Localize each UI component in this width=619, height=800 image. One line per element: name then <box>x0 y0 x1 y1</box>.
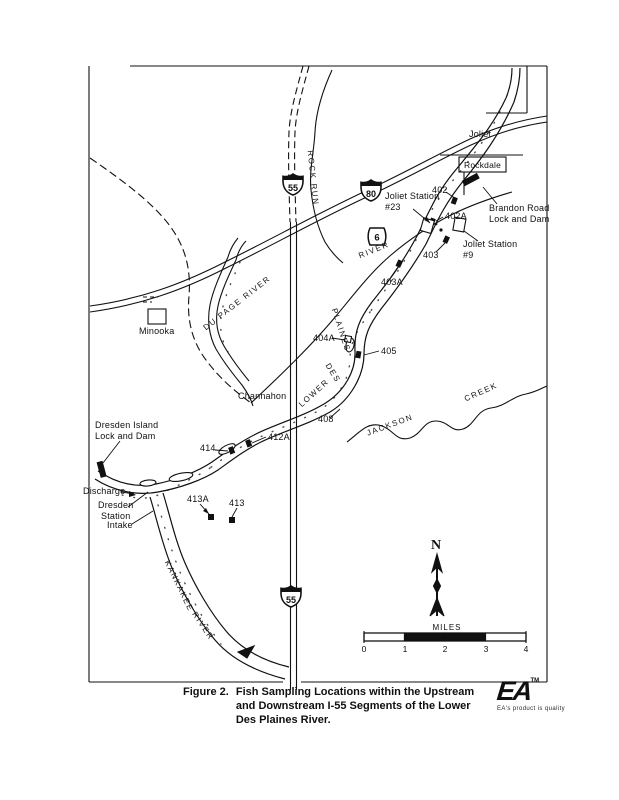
callout-dresden-island: Dresden Island Lock and Dam <box>95 420 158 443</box>
scale-tick-3: 3 <box>484 644 489 654</box>
town-label-rockdale: Rockdale <box>464 160 501 171</box>
station-label-408: 408 <box>318 414 334 425</box>
figure-caption-label: Figure 2. <box>183 686 229 727</box>
station-label-402: 402 <box>432 185 448 196</box>
town-label-minooka: Minooka <box>139 326 174 337</box>
dresden-island-dam <box>97 461 106 477</box>
callout-discharge: Discharge <box>83 486 125 497</box>
station-label-414: 414 <box>200 443 216 454</box>
ea-logo-mark: EA <box>496 678 532 705</box>
ea-logo-tagline: EA's product is quality <box>497 706 587 712</box>
callout-intake: Intake <box>107 520 133 531</box>
scale-tick-1: 1 <box>403 644 408 654</box>
i55-shield-number: 55 <box>288 183 298 193</box>
callout-joliet-station-9: Joliet Station #9 <box>463 239 517 262</box>
i55-south-shield-number: 55 <box>286 595 296 605</box>
scale-tick-2: 2 <box>443 644 448 654</box>
i80-road <box>90 116 547 312</box>
minooka-town-marker <box>148 309 166 324</box>
callout-brandon-road: Brandon Road Lock and Dam <box>489 203 549 226</box>
station-label-404a: 404A <box>313 333 335 344</box>
kankakee-river-path <box>150 493 289 679</box>
station-label-412a: 412A <box>268 432 290 443</box>
station-label-403a: 403A <box>381 277 403 288</box>
scale-tick-0: 0 <box>362 644 367 654</box>
i55-shield-north: 55 <box>281 172 305 197</box>
station-label-403: 403 <box>423 250 439 261</box>
ea-logo: EATM EA's product is quality <box>497 678 587 712</box>
compass-n-label: N <box>431 538 441 554</box>
north-arrow <box>430 554 444 616</box>
document-page: 55 80 6 55 Joliet Rockdale Minooka Chann… <box>0 0 619 800</box>
station-label-413a: 413A <box>187 494 209 505</box>
i55-shield-south: 55 <box>279 584 303 609</box>
scale-title: MILES <box>432 623 461 633</box>
town-label-joliet: Joliet <box>469 129 491 140</box>
station-markers <box>208 196 458 523</box>
brandon-road-dam <box>463 174 479 186</box>
station-open-markers <box>345 217 466 342</box>
station-label-405: 405 <box>381 346 397 357</box>
i80-shield: 80 <box>359 178 383 203</box>
i80-shield-number: 80 <box>366 189 376 199</box>
river-islands <box>140 337 356 486</box>
town-label-channahon: Channahon <box>238 391 286 402</box>
station-label-413: 413 <box>229 498 245 509</box>
station-label-402a: 402A <box>445 211 467 222</box>
scale-tick-4: 4 <box>524 644 529 654</box>
figure-caption-text: Fish Sampling Locations within the Upstr… <box>236 686 536 727</box>
figure-caption: Figure 2. Fish Sampling Locations within… <box>183 686 536 727</box>
